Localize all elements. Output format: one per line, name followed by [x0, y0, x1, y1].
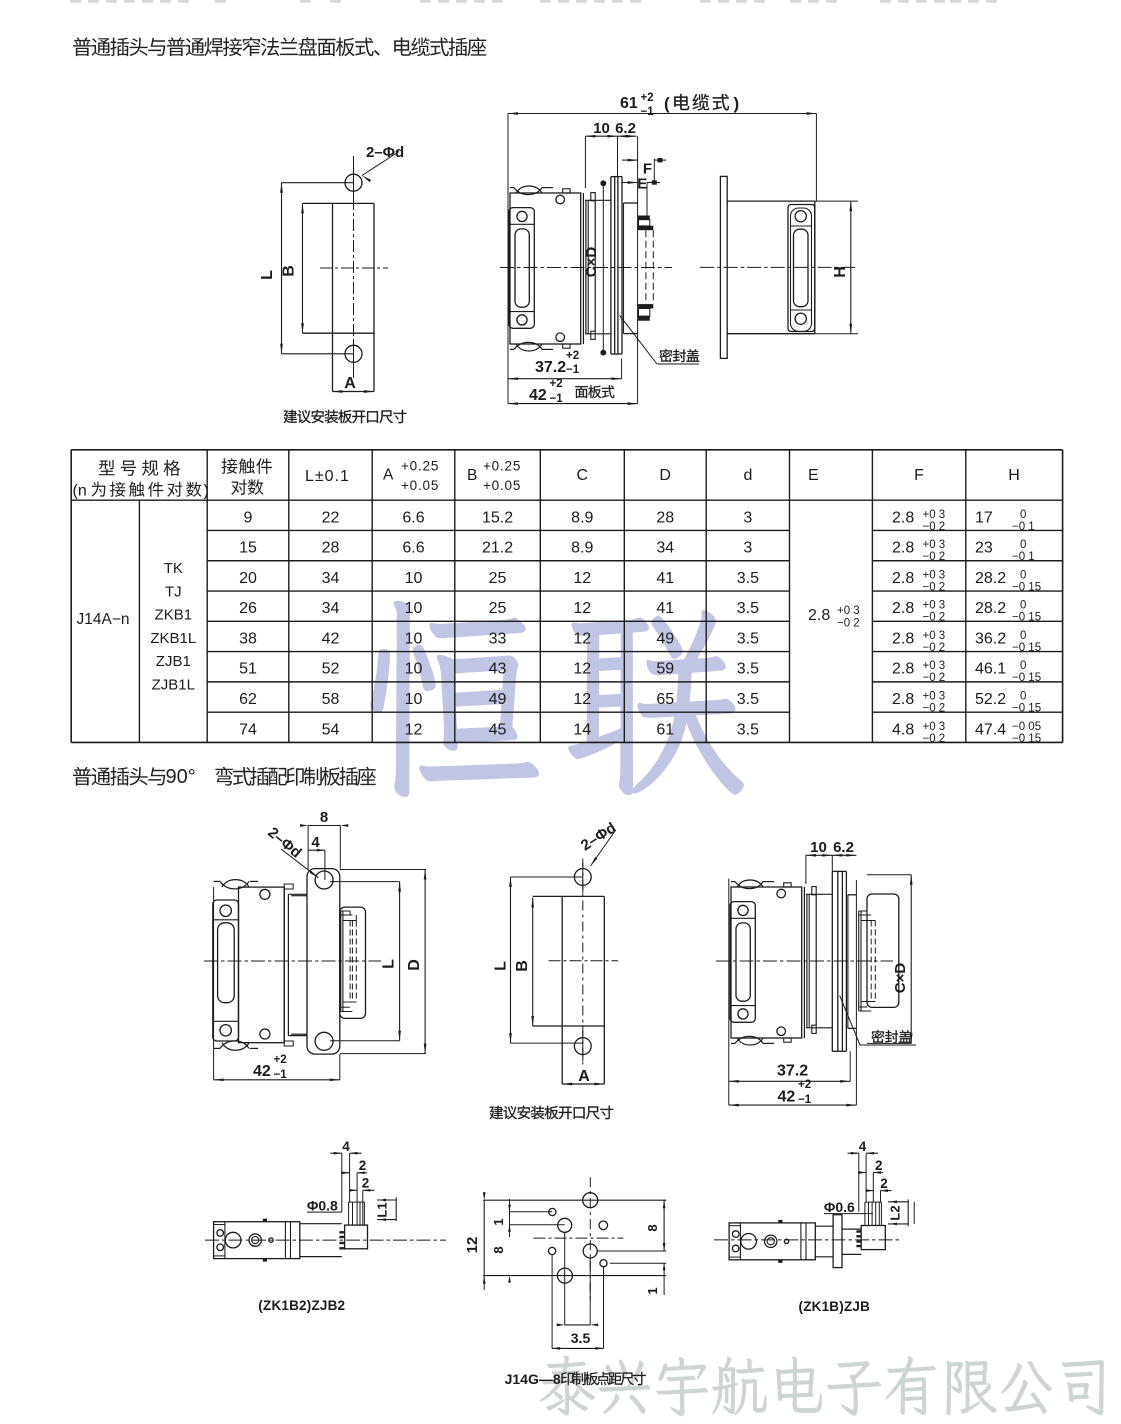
svg-text:−0 15: −0 15 [1012, 703, 1041, 715]
svg-text:0: 0 [1020, 691, 1026, 703]
svg-text:+0 3: +0 3 [923, 660, 946, 672]
svg-text:−1: −1 [274, 1069, 288, 1081]
svg-text:6.6: 6.6 [402, 509, 424, 526]
svg-text:B: B [281, 265, 298, 277]
svg-text:0: 0 [1020, 509, 1026, 521]
svg-text:A: A [383, 467, 394, 484]
svg-text:d: d [743, 467, 752, 484]
svg-text:9: 9 [244, 509, 253, 526]
svg-text:H: H [832, 266, 849, 278]
svg-text:12: 12 [573, 661, 591, 678]
svg-text:2: 2 [359, 1158, 367, 1173]
svg-text:49: 49 [656, 630, 674, 647]
svg-text:42: 42 [253, 1063, 271, 1080]
svg-text:−0 2: −0 2 [923, 642, 946, 654]
svg-text:52: 52 [322, 661, 340, 678]
svg-text:28: 28 [322, 540, 340, 557]
svg-text:51: 51 [239, 661, 257, 678]
svg-text:C×D: C×D [892, 963, 909, 994]
svg-text:+0 3: +0 3 [923, 539, 946, 551]
svg-text:H: H [1008, 467, 1020, 484]
svg-text:3.5: 3.5 [737, 721, 759, 738]
svg-text:3.5: 3.5 [737, 691, 759, 708]
svg-text:17: 17 [975, 509, 993, 526]
svg-text:2: 2 [875, 1158, 883, 1173]
svg-text:20: 20 [239, 570, 257, 587]
svg-text:12: 12 [464, 1237, 481, 1254]
svg-text:42: 42 [529, 387, 547, 404]
svg-text:0: 0 [1020, 630, 1026, 642]
svg-text:12: 12 [405, 721, 423, 738]
svg-text:): ) [734, 94, 740, 113]
svg-text:−0 2: −0 2 [923, 703, 946, 715]
svg-text:61: 61 [656, 721, 674, 738]
svg-text:A: A [344, 375, 356, 392]
svg-text:+0.25: +0.25 [483, 459, 521, 474]
svg-text:0: 0 [1020, 569, 1026, 581]
svg-text:4: 4 [342, 1139, 350, 1154]
svg-text:−1: −1 [550, 393, 564, 405]
svg-text:−0 15: −0 15 [1012, 581, 1041, 593]
svg-text:ZKB1: ZKB1 [155, 607, 193, 624]
svg-text:(: ( [664, 94, 670, 113]
svg-text:+0.05: +0.05 [483, 478, 521, 493]
svg-text:−0 15: −0 15 [1012, 612, 1041, 624]
svg-text:+2: +2 [274, 1054, 287, 1066]
svg-text:2.8: 2.8 [892, 661, 914, 678]
svg-text:+2: +2 [641, 92, 654, 104]
svg-text:23: 23 [975, 540, 993, 557]
svg-text:(ZK1B)ZJB: (ZK1B)ZJB [799, 1299, 871, 1314]
svg-text:1: 1 [491, 1218, 506, 1225]
svg-text:25: 25 [489, 570, 507, 587]
svg-text:+0 3: +0 3 [923, 691, 946, 703]
svg-text:2.8: 2.8 [808, 607, 830, 624]
svg-text:+0 3: +0 3 [923, 630, 946, 642]
svg-text:D: D [659, 467, 671, 484]
svg-text:−0 1: −0 1 [1012, 521, 1035, 533]
svg-text:47.4: 47.4 [975, 721, 1006, 738]
svg-text:−0 2: −0 2 [923, 521, 946, 533]
svg-text:21.2: 21.2 [482, 540, 513, 557]
svg-text:Φ0.6: Φ0.6 [824, 1199, 855, 1215]
svg-text:2: 2 [880, 1176, 888, 1191]
svg-text:26: 26 [239, 600, 257, 617]
svg-text:3.5: 3.5 [571, 1330, 591, 1346]
svg-text:2.8: 2.8 [892, 600, 914, 617]
svg-text:41: 41 [656, 570, 674, 587]
svg-text:+2: +2 [566, 350, 579, 362]
svg-text:22: 22 [322, 509, 340, 526]
svg-text:+0.05: +0.05 [401, 478, 439, 493]
svg-text:2.8: 2.8 [892, 570, 914, 587]
svg-text:45: 45 [489, 721, 507, 738]
svg-text:52.2: 52.2 [975, 691, 1006, 708]
svg-text:46.1: 46.1 [975, 661, 1006, 678]
svg-text:74: 74 [239, 721, 257, 738]
svg-text:12: 12 [573, 691, 591, 708]
svg-text:ZJB1: ZJB1 [156, 653, 191, 670]
svg-text:10: 10 [405, 600, 423, 617]
svg-text:L: L [493, 961, 510, 971]
svg-text:A: A [578, 1068, 590, 1085]
svg-text:D: D [406, 959, 423, 971]
svg-text:−0 15: −0 15 [1012, 642, 1041, 654]
svg-text:90°: 90° [166, 766, 196, 788]
svg-text:J14G—8: J14G—8 [505, 1371, 561, 1387]
svg-text:2: 2 [362, 1176, 370, 1191]
svg-text:38: 38 [239, 630, 257, 647]
svg-text:36.2: 36.2 [975, 630, 1006, 647]
svg-text:59: 59 [656, 661, 674, 678]
svg-text:28: 28 [656, 509, 674, 526]
svg-text:2.8: 2.8 [892, 630, 914, 647]
svg-text:34: 34 [656, 540, 674, 557]
svg-text:62: 62 [239, 691, 257, 708]
svg-text:58: 58 [322, 691, 340, 708]
svg-text:L2: L2 [888, 1205, 903, 1220]
svg-text:(n: (n [73, 483, 87, 500]
svg-text:28.2: 28.2 [975, 570, 1006, 587]
svg-text:2.8: 2.8 [892, 540, 914, 557]
svg-text:J14A−n: J14A−n [77, 611, 130, 628]
svg-text:4: 4 [311, 834, 320, 851]
svg-text:(ZK1B2)ZJB2: (ZK1B2)ZJB2 [258, 1298, 345, 1313]
svg-text:65: 65 [656, 691, 674, 708]
svg-text:−0 1: −0 1 [1012, 551, 1035, 563]
svg-text:+2: +2 [550, 378, 563, 390]
svg-text:33: 33 [489, 630, 507, 647]
svg-text:E: E [637, 176, 647, 193]
svg-text:37.2: 37.2 [535, 359, 566, 376]
svg-text:3.5: 3.5 [737, 600, 759, 617]
svg-text:4.8: 4.8 [892, 721, 914, 738]
svg-text:3.5: 3.5 [737, 661, 759, 678]
svg-text:−0 2: −0 2 [923, 672, 946, 684]
svg-text:37.2: 37.2 [777, 1063, 808, 1080]
svg-text:−0 2: −0 2 [923, 612, 946, 624]
svg-text:34: 34 [322, 570, 340, 587]
svg-text:4: 4 [859, 1139, 867, 1154]
svg-text:L: L [381, 959, 398, 969]
svg-text:54: 54 [322, 721, 340, 738]
svg-text:Φ0.8: Φ0.8 [307, 1198, 338, 1214]
svg-text:61: 61 [620, 95, 638, 112]
svg-text:2–Φd: 2–Φd [366, 144, 404, 161]
svg-text:15.2: 15.2 [482, 509, 513, 526]
svg-text:10: 10 [405, 570, 423, 587]
svg-text:2.8: 2.8 [892, 509, 914, 526]
svg-text:3.5: 3.5 [737, 630, 759, 647]
svg-text:E: E [808, 467, 819, 484]
svg-text:B: B [514, 960, 531, 972]
svg-text:12: 12 [573, 600, 591, 617]
svg-text:15: 15 [239, 540, 257, 557]
svg-text:8: 8 [491, 1246, 506, 1253]
svg-text:2.8: 2.8 [892, 691, 914, 708]
svg-text:10: 10 [810, 839, 827, 856]
svg-text:L1: L1 [375, 1202, 390, 1217]
svg-text:43: 43 [489, 661, 507, 678]
svg-text:25: 25 [489, 600, 507, 617]
svg-text:42: 42 [778, 1089, 796, 1106]
svg-text:0: 0 [1020, 600, 1026, 612]
svg-text:−1: −1 [566, 364, 580, 376]
svg-text:3.5: 3.5 [737, 570, 759, 587]
svg-text:12: 12 [573, 570, 591, 587]
svg-text:−0 15: −0 15 [1012, 733, 1041, 745]
svg-text:+0 3: +0 3 [837, 605, 860, 617]
svg-text:8: 8 [320, 809, 328, 826]
svg-text:ZJB1L: ZJB1L [152, 677, 195, 694]
svg-text:6.6: 6.6 [402, 540, 424, 557]
svg-text:L: L [259, 270, 276, 280]
svg-text:1: 1 [645, 1287, 660, 1294]
svg-text:0: 0 [1020, 660, 1026, 672]
svg-text:C: C [577, 467, 589, 484]
svg-text:−0 2: −0 2 [923, 733, 946, 745]
svg-text:+0 3: +0 3 [923, 569, 946, 581]
svg-text:−0 2: −0 2 [837, 618, 860, 630]
svg-text:+2: +2 [798, 1079, 811, 1091]
svg-text:−1: −1 [641, 106, 655, 118]
svg-text:TJ: TJ [165, 583, 182, 600]
svg-text:TK: TK [164, 560, 183, 577]
svg-text:8.9: 8.9 [571, 540, 593, 557]
svg-text:10: 10 [405, 661, 423, 678]
svg-text:49: 49 [489, 691, 507, 708]
svg-text:0: 0 [1020, 539, 1026, 551]
svg-text:6.2: 6.2 [833, 839, 854, 856]
svg-text:ZKB1L: ZKB1L [150, 630, 196, 647]
svg-text:): ) [204, 483, 209, 500]
svg-text:6.2: 6.2 [615, 120, 636, 137]
svg-text:+0 3: +0 3 [923, 509, 946, 521]
svg-text:41: 41 [656, 600, 674, 617]
svg-text:3: 3 [743, 540, 752, 557]
svg-text:L±0.1: L±0.1 [305, 468, 350, 485]
svg-text:C×D: C×D [583, 247, 600, 278]
svg-text:B: B [467, 467, 477, 484]
svg-text:−1: −1 [798, 1094, 812, 1106]
svg-text:−0 05: −0 05 [1012, 721, 1041, 733]
svg-text:10: 10 [405, 630, 423, 647]
svg-text:28.2: 28.2 [975, 600, 1006, 617]
svg-text:−0 2: −0 2 [923, 551, 946, 563]
svg-text:3: 3 [743, 509, 752, 526]
svg-text:12: 12 [573, 630, 591, 647]
svg-text:−0 15: −0 15 [1012, 672, 1041, 684]
svg-text:8: 8 [645, 1224, 660, 1231]
svg-text:+0 3: +0 3 [923, 600, 946, 612]
svg-text:14: 14 [573, 721, 591, 738]
svg-text:−0 2: −0 2 [923, 581, 946, 593]
svg-text:34: 34 [322, 600, 340, 617]
svg-text:10: 10 [405, 691, 423, 708]
svg-text:+0 3: +0 3 [923, 721, 946, 733]
svg-text:8.9: 8.9 [571, 509, 593, 526]
svg-text:+0.25: +0.25 [401, 459, 439, 474]
svg-text:10: 10 [593, 120, 610, 137]
svg-text:42: 42 [322, 630, 340, 647]
svg-text:F: F [914, 467, 924, 484]
